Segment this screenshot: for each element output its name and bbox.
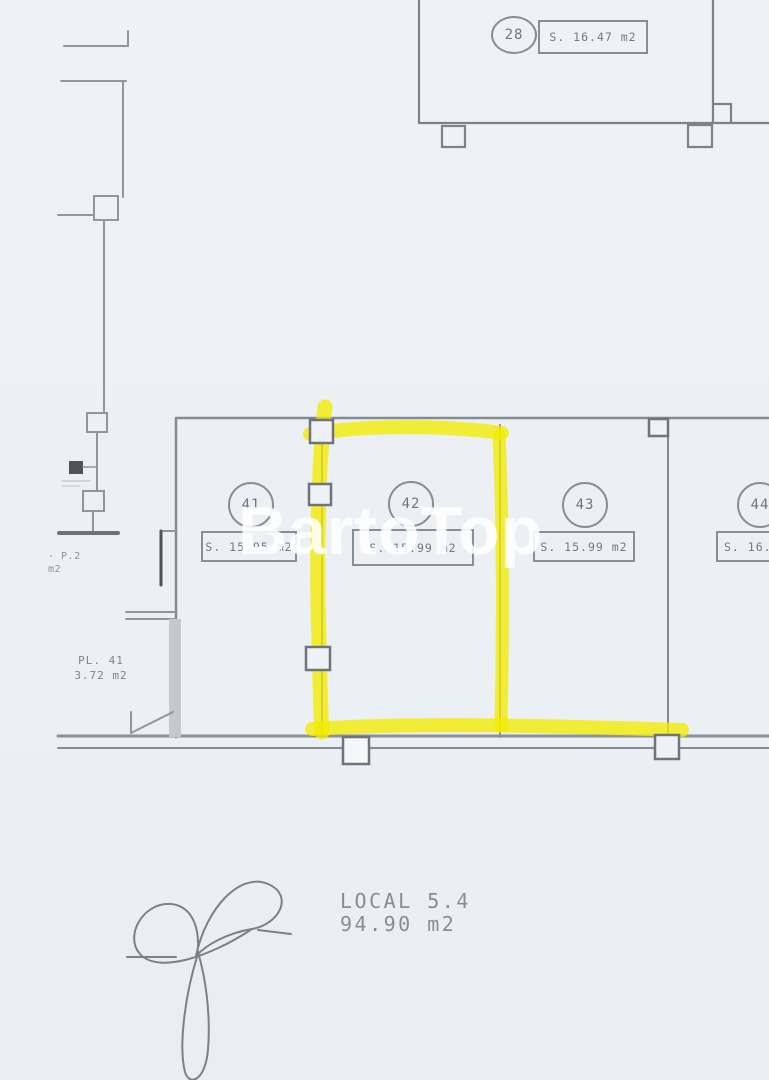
annotation-left-upper: · P.2 m2 — [48, 550, 81, 576]
annotation-left-room-line2: 3.72 m2 — [68, 668, 134, 683]
unit-circle-43: 43 — [562, 482, 608, 528]
scanned-floorplan-page: { "page": { "type": "scanned floor plan"… — [0, 0, 769, 1080]
unit-area-box-44: S. 16.47 m2 — [716, 531, 769, 562]
unit-number-42: 42 — [402, 496, 421, 512]
unit-circle-41: 41 — [228, 482, 274, 528]
unit-number-top: 28 — [505, 27, 524, 43]
local-caption-line2: 94.90 m2 — [340, 913, 540, 936]
local-caption-line1: LOCAL 5.4 — [340, 890, 540, 913]
unit-area-44: S. 16.47 m2 — [724, 540, 769, 554]
unit-area-box-43: S. 15.99 m2 — [533, 531, 635, 562]
annotation-left-room-line1: PL. 41 — [68, 653, 134, 668]
annotation-left-room: PL. 41 3.72 m2 — [68, 653, 134, 683]
unit-circle-42: 42 — [388, 481, 434, 527]
unit-area-43: S. 15.99 m2 — [540, 540, 627, 554]
annotation-left-upper-line1: · P.2 — [48, 550, 81, 563]
annotation-left-upper-line2: m2 — [48, 563, 81, 576]
unit-area-box-41: S. 15.95 m2 — [201, 531, 297, 562]
labels-layer: 28 S. 16.47 m2 41 S. 15.95 m2 42 S. 15.9… — [0, 0, 769, 1080]
unit-number-44: 44 — [751, 497, 769, 513]
unit-area-box-top: S. 16.47 m2 — [538, 20, 648, 54]
unit-area-41: S. 15.95 m2 — [205, 540, 292, 554]
unit-number-43: 43 — [576, 497, 595, 513]
unit-circle-top: 28 — [491, 16, 537, 54]
unit-number-41: 41 — [242, 497, 261, 513]
unit-area-42: S. 15.99 m2 — [369, 541, 456, 555]
unit-circle-44: 44 — [737, 482, 769, 528]
unit-area-top: S. 16.47 m2 — [549, 30, 636, 44]
unit-area-box-42: S. 15.99 m2 — [352, 529, 474, 566]
local-caption: LOCAL 5.4 94.90 m2 — [340, 890, 540, 936]
